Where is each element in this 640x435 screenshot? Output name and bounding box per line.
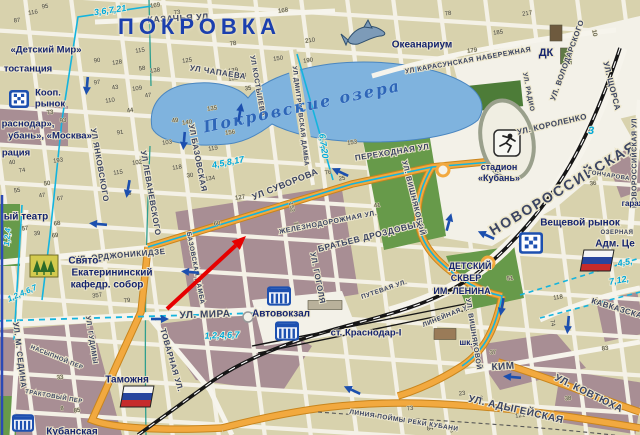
stadium-icon	[494, 130, 520, 156]
place-label: Кооп.	[35, 87, 61, 98]
transit-route-badge: 3	[588, 125, 594, 137]
place-label: ДЕТСКИЙ	[449, 260, 492, 271]
flag-icon	[580, 250, 614, 271]
terminal-icon	[267, 286, 291, 305]
place-label: ДК	[539, 47, 554, 59]
svg-text:Автовокзал: Автовокзал	[252, 309, 310, 320]
place-label: Таможня	[105, 375, 149, 386]
market-icon	[9, 90, 29, 108]
svg-text:Таможня: Таможня	[105, 375, 149, 386]
svg-text:шк.: шк.	[460, 338, 473, 347]
place-label: Океанариум	[392, 40, 453, 51]
svg-text:Екатерининский: Екатерининский	[71, 268, 152, 279]
svg-text:«Кубань»: «Кубань»	[478, 173, 520, 183]
place-label: убань», «Москва»	[8, 130, 92, 141]
svg-text:убань», «Москва»: убань», «Москва»	[8, 130, 92, 141]
place-label: Свято-	[68, 256, 101, 267]
svg-text:ДК: ДК	[539, 47, 554, 59]
svg-text:Кооп.: Кооп.	[35, 87, 61, 98]
svg-text:ст. Краснодар-I: ст. Краснодар-I	[331, 327, 402, 338]
place-label: Вещевой рынок	[540, 218, 621, 229]
svg-text:НОВОРОССИЙСКАЯ УЛ: НОВОРОССИЙСКАЯ УЛ	[629, 118, 638, 208]
svg-text:гараж: гараж	[622, 199, 640, 208]
svg-text:кафедр. собор: кафедр. собор	[71, 279, 144, 291]
place-label: раснодар»,	[2, 118, 55, 129]
place-label: ст. Краснодар-I	[331, 327, 402, 338]
svg-text:рынок: рынок	[35, 98, 65, 109]
svg-text:тостанция: тостанция	[4, 63, 52, 74]
street-label: УЛ. МИРА	[179, 309, 230, 322]
place-label: стадион	[481, 162, 518, 172]
transit-route-badge: 1,2,4,6,7	[204, 330, 240, 341]
place-label: «Кубань»	[478, 173, 520, 183]
svg-text:Свято-: Свято-	[68, 256, 101, 267]
svg-text:СКВЕР: СКВЕР	[451, 273, 482, 283]
svg-text:КИМ: КИМ	[491, 361, 515, 374]
svg-text:Кубанская: Кубанская	[46, 426, 98, 435]
svg-text:ый театр: ый театр	[4, 212, 49, 223]
building-icon	[434, 329, 456, 340]
svg-text:раснодар»,: раснодар»,	[2, 118, 55, 129]
city-map: 8795116169731151289012513858781392315019…	[0, 0, 640, 435]
place-label: гараж	[622, 199, 640, 208]
svg-text:1,2,4,6,7: 1,2,4,6,7	[204, 330, 240, 341]
place-label: ый театр	[4, 212, 49, 223]
building-icon	[550, 25, 562, 41]
place-label: шк.	[460, 338, 473, 347]
market-icon	[519, 232, 543, 254]
street-label: ОЗЕРНАЯ	[601, 230, 634, 236]
transit-route-badge: 1,2,4	[2, 227, 13, 246]
street-label: КИМ	[491, 361, 515, 374]
church-icon	[30, 255, 58, 277]
svg-text:Вещевой рынок: Вещевой рынок	[540, 218, 621, 229]
svg-text:Океанариум: Океанариум	[392, 40, 453, 51]
street-label: НОВОРОССИЙСКАЯ УЛ	[629, 118, 638, 208]
svg-text:УЛ. МИРА: УЛ. МИРА	[179, 309, 230, 322]
svg-text:«Детский Мир»: «Детский Мир»	[10, 44, 81, 55]
svg-text:1,2,4: 1,2,4	[2, 227, 13, 246]
svg-text:Адм. Це: Адм. Це	[595, 239, 635, 250]
place-label: СКВЕР	[451, 273, 482, 283]
svg-text:3: 3	[588, 125, 594, 137]
flag-icon	[120, 386, 154, 407]
svg-text:ДЕТСКИЙ: ДЕТСКИЙ	[449, 260, 492, 271]
terminal-icon	[12, 414, 34, 432]
svg-text:рация: рация	[2, 147, 30, 158]
place-label: тостанция	[4, 63, 52, 74]
place-label: Екатерининский	[71, 268, 152, 279]
place-label: Автовокзал	[252, 309, 310, 320]
place-label: ИМ. ЛЕНИНА	[433, 286, 491, 296]
place-label: кафедр. собор	[71, 279, 144, 291]
place-label: Адм. Це	[595, 239, 635, 250]
place-label: Кубанская	[46, 426, 98, 435]
place-label: «Детский Мир»	[10, 44, 81, 55]
svg-text:стадион: стадион	[481, 162, 518, 172]
place-label: рация	[2, 147, 30, 158]
svg-text:ИМ. ЛЕНИНА: ИМ. ЛЕНИНА	[433, 286, 491, 296]
terminal-icon	[275, 321, 299, 340]
svg-text:ОЗЕРНАЯ: ОЗЕРНАЯ	[601, 230, 634, 236]
place-label: рынок	[35, 98, 65, 109]
map-canvas: 8795116169731151289012513858781392315019…	[0, 0, 640, 435]
